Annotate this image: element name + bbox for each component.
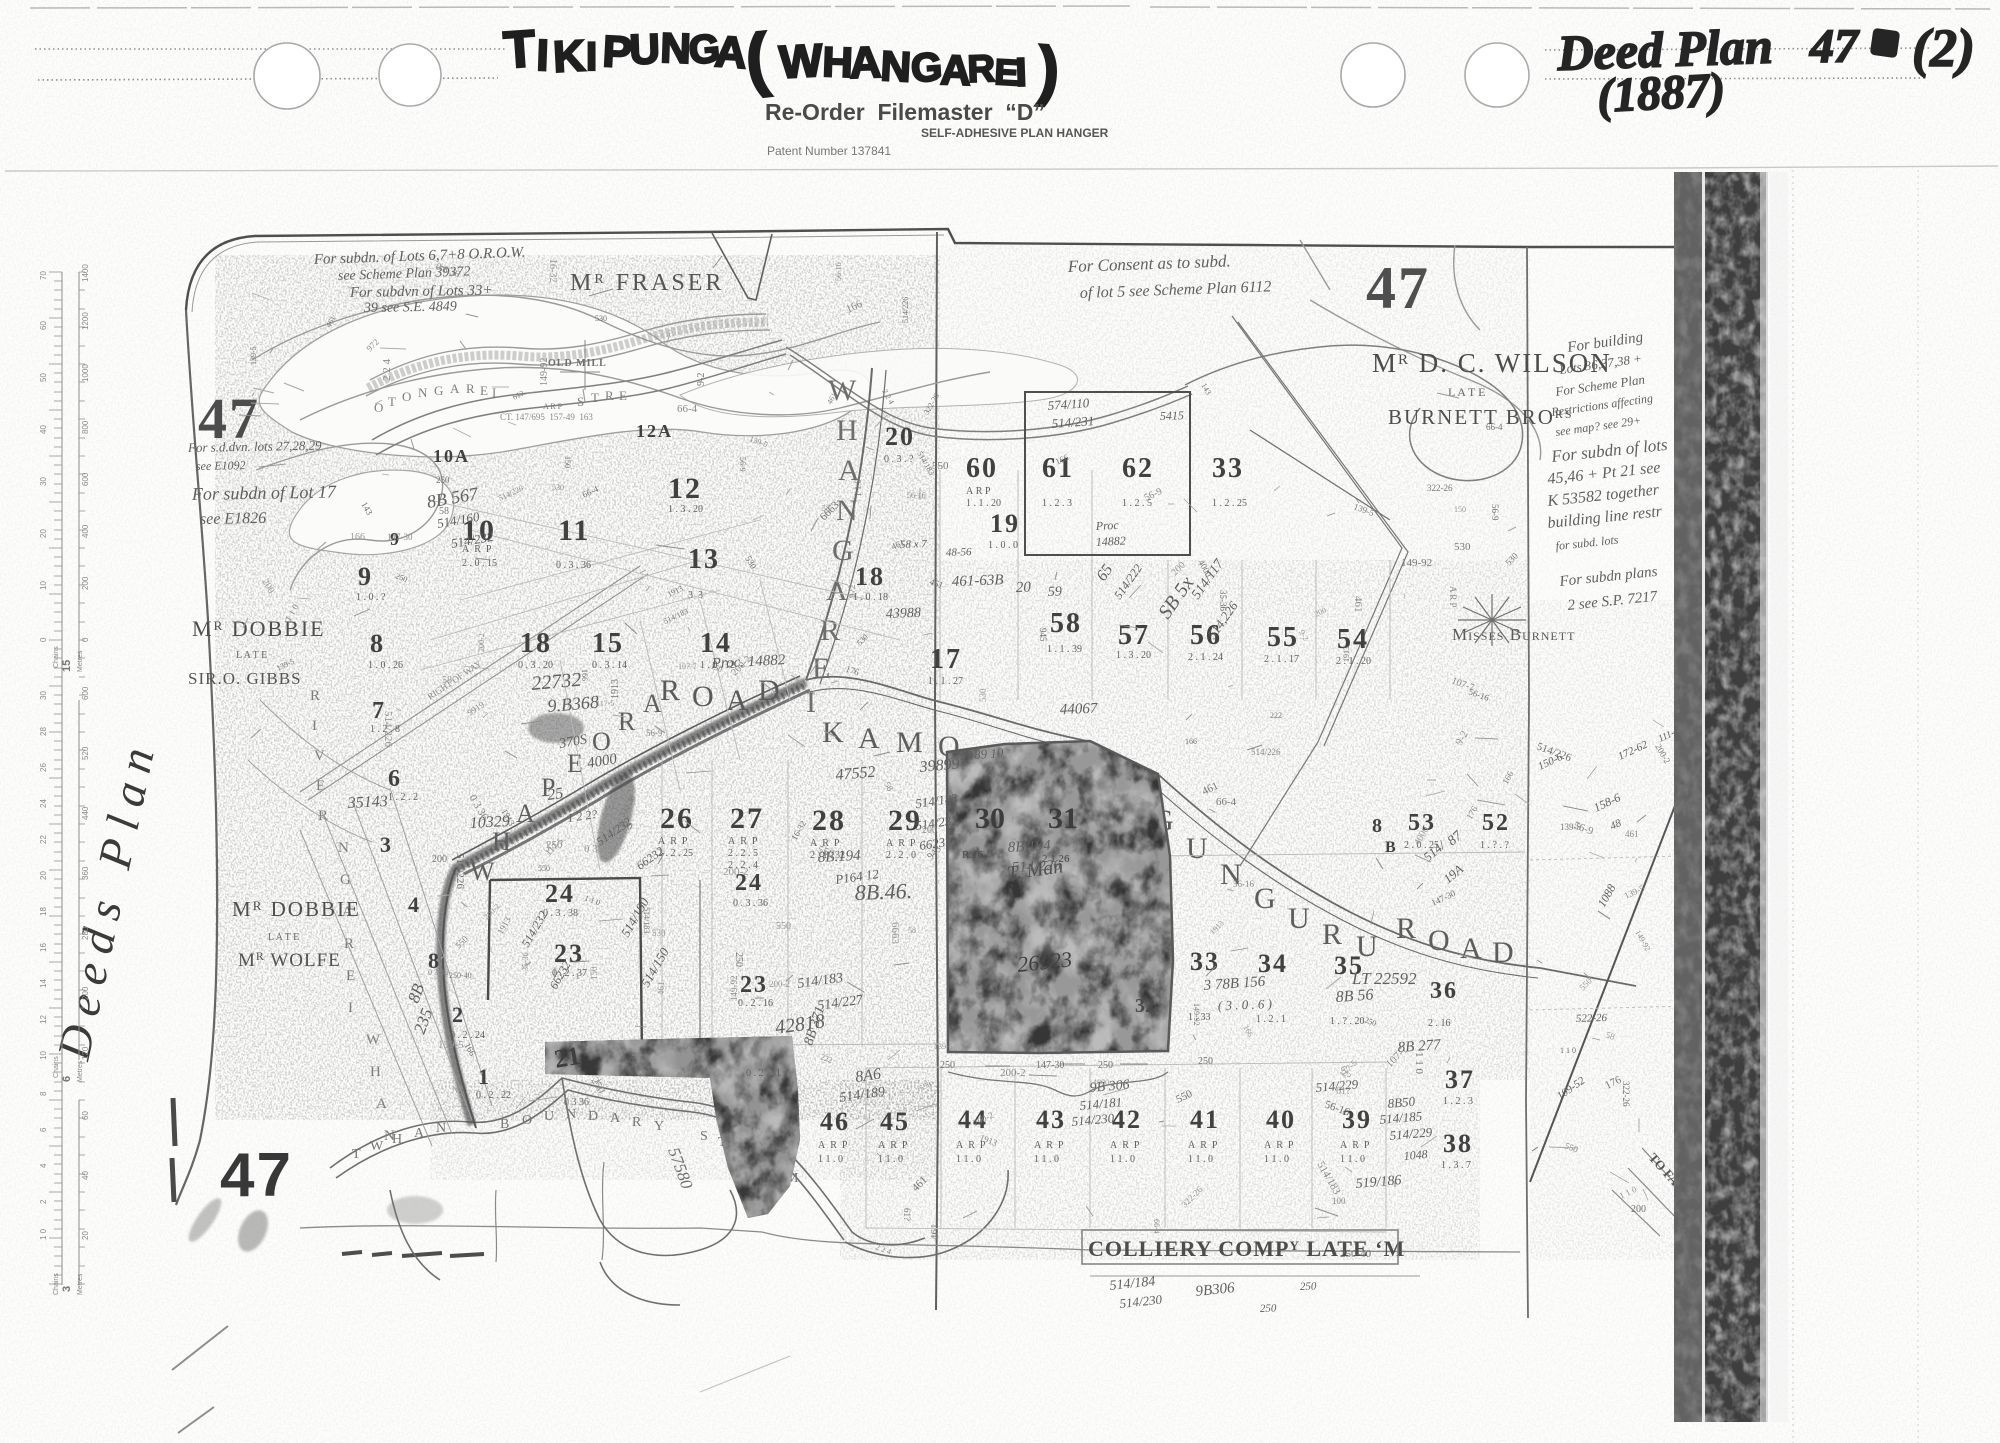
svg-text:50: 50 <box>39 373 48 382</box>
svg-text:A: A <box>610 1111 621 1126</box>
svg-text:E: E <box>346 968 355 984</box>
svg-text:461: 461 <box>656 982 666 996</box>
svg-text:200: 200 <box>432 854 447 865</box>
svg-text:2 . 16: 2 . 16 <box>1428 1018 1451 1029</box>
svg-text:1 . 1 . 39: 1 . 1 . 39 <box>1047 644 1082 655</box>
svg-text:16-32: 16-32 <box>547 259 558 282</box>
svg-text:Metres: Metres <box>77 1060 84 1082</box>
svg-text:250: 250 <box>1260 1302 1277 1315</box>
svg-text:200-2: 200-2 <box>1000 1067 1026 1079</box>
svg-text:600: 600 <box>81 472 90 486</box>
svg-text:66-4: 66-4 <box>1216 796 1237 808</box>
svg-text:Chains: Chains <box>53 646 60 668</box>
svg-text:E: E <box>480 383 488 398</box>
svg-text:1 . 2 . 2: 1 . 2 . 2 <box>388 792 418 803</box>
svg-text:1000: 1000 <box>81 364 90 382</box>
svg-text:0 . 2 . 16: 0 . 2 . 16 <box>738 998 773 1009</box>
svg-text:56-16: 56-16 <box>907 491 926 500</box>
svg-text:58: 58 <box>908 926 916 935</box>
svg-text:3 3: 3 3 <box>688 590 703 601</box>
svg-text:250: 250 <box>436 475 450 485</box>
svg-text:(2): (2) <box>1912 18 1975 78</box>
svg-text:S: S <box>577 394 584 409</box>
svg-text:24: 24 <box>545 879 575 908</box>
svg-text:15: 15 <box>61 660 73 672</box>
svg-text:18: 18 <box>39 907 48 916</box>
svg-text:W: W <box>470 857 495 886</box>
svg-text:514/226: 514/226 <box>1251 747 1281 757</box>
svg-text:58: 58 <box>822 504 830 513</box>
svg-text:400: 400 <box>81 524 90 538</box>
svg-text:1 . 0 . ?: 1 . 0 . ? <box>356 592 386 603</box>
svg-text:I: I <box>348 1000 353 1016</box>
svg-text:150: 150 <box>589 966 599 980</box>
svg-text:16: 16 <box>39 943 48 952</box>
svg-text:D: D <box>1492 936 1514 969</box>
svg-text:Chains: Chains <box>53 1273 60 1295</box>
svg-text:R: R <box>466 381 475 396</box>
svg-text:139-5: 139-5 <box>1560 822 1581 832</box>
svg-text:66-4: 66-4 <box>1486 422 1503 432</box>
svg-text:1 . 3 . 7: 1 . 3 . 7 <box>1441 1160 1471 1171</box>
svg-text:107-7: 107-7 <box>678 662 697 671</box>
svg-text:1 . ? . 20: 1 . ? . 20 <box>1330 1016 1364 1027</box>
svg-text:100: 100 <box>1332 1196 1346 1206</box>
svg-text:A: A <box>858 722 880 755</box>
svg-text:514/226: 514/226 <box>454 853 466 890</box>
svg-text:A R P: A R P <box>1034 1140 1064 1151</box>
svg-text:I: I <box>312 718 317 734</box>
svg-text:B: B <box>500 1117 509 1132</box>
svg-text:33: 33 <box>1212 453 1244 484</box>
svg-text:T: T <box>388 394 396 409</box>
svg-text:OLD MILL: OLD MILL <box>548 358 607 369</box>
svg-text:1 1 . 0: 1 1 . 0 <box>878 1154 903 1165</box>
svg-text:56-9: 56-9 <box>738 457 747 472</box>
svg-text:N: N <box>418 385 428 400</box>
svg-text:( 3 . 0 . 6 ): ( 3 . 0 . 6 ) <box>1218 996 1273 1013</box>
svg-text:47: 47 <box>1366 255 1430 321</box>
svg-text:20: 20 <box>39 529 48 538</box>
svg-text:9-2: 9-2 <box>696 373 707 386</box>
svg-text:0 3 36: 0 3 36 <box>584 843 612 855</box>
svg-text:MR DOBBIE: MR DOBBIE <box>232 897 361 921</box>
svg-text:A: A <box>414 1126 425 1141</box>
svg-text:O: O <box>522 1113 532 1128</box>
svg-text:0 . 3 . 36: 0 . 3 . 36 <box>556 560 591 571</box>
svg-text:200-2: 200-2 <box>723 866 749 878</box>
svg-text:200: 200 <box>922 825 937 836</box>
svg-text:Re-Order Filemaster “D”: Re-Order Filemaster “D” <box>765 99 1045 125</box>
svg-text:For s.d.dvn. lots 27,28,29: For s.d.dvn. lots 27,28,29 <box>187 438 322 455</box>
svg-text:Metres: Metres <box>77 1273 84 1295</box>
svg-text:58: 58 <box>442 675 452 686</box>
svg-text:3: 3 <box>380 832 393 857</box>
svg-text:G: G <box>434 383 443 398</box>
svg-text:O: O <box>402 389 411 404</box>
svg-text:G: G <box>1254 882 1276 915</box>
svg-text:R: R <box>310 688 320 704</box>
svg-text:520: 520 <box>81 746 90 760</box>
svg-text:200-2: 200-2 <box>769 979 790 989</box>
svg-text:T: T <box>591 390 599 405</box>
svg-text:30: 30 <box>975 802 1005 835</box>
svg-text:1 1 . 0: 1 1 . 0 <box>1340 1154 1365 1165</box>
svg-text:A: A <box>450 381 460 396</box>
svg-text:70: 70 <box>39 271 48 280</box>
svg-text:6: 6 <box>61 1076 73 1082</box>
svg-text:139-5: 139-5 <box>249 346 258 365</box>
svg-text:4000: 4000 <box>1093 1078 1109 1087</box>
svg-text:12A: 12A <box>636 421 673 441</box>
svg-text:139-5: 139-5 <box>438 1039 464 1051</box>
svg-text:1 1 . 0: 1 1 . 0 <box>1034 1154 1059 1165</box>
svg-text:A R P: A R P <box>966 486 991 497</box>
svg-text:N: N <box>384 1128 395 1144</box>
svg-text:W: W <box>778 34 825 88</box>
svg-text:0 . 3 . 14: 0 . 3 . 14 <box>592 660 627 671</box>
svg-text:0: 0 <box>81 637 90 642</box>
svg-text:1 . 1 . 27: 1 . 1 . 27 <box>928 676 963 687</box>
svg-text:149-92: 149-92 <box>539 358 550 386</box>
svg-text:322-26: 322-26 <box>1427 483 1453 493</box>
svg-text:514/226: 514/226 <box>1011 857 1061 876</box>
svg-text:28: 28 <box>39 727 48 736</box>
svg-text:4: 4 <box>408 892 421 917</box>
svg-text:1400: 1400 <box>81 264 90 282</box>
svg-text:26: 26 <box>660 802 694 835</box>
svg-text:P189 10: P189 10 <box>958 745 1004 763</box>
svg-text:9: 9 <box>358 562 373 591</box>
svg-text:31: 31 <box>1048 802 1078 835</box>
svg-text:1 . 1 . 20: 1 . 1 . 20 <box>966 498 1001 509</box>
svg-text:S: S <box>700 1129 708 1144</box>
svg-text:11: 11 <box>558 514 590 547</box>
svg-text:28: 28 <box>812 804 846 837</box>
svg-text:250-40: 250-40 <box>449 971 472 980</box>
svg-text:20: 20 <box>39 871 48 880</box>
svg-text:550: 550 <box>932 460 949 472</box>
svg-text:461: 461 <box>1352 596 1364 613</box>
svg-text:N: N <box>436 1121 446 1136</box>
svg-text:52: 52 <box>1482 810 1510 836</box>
svg-text:61?: 61? <box>902 1208 912 1221</box>
svg-text:56-16: 56-16 <box>1233 879 1254 889</box>
svg-text:4: 4 <box>39 1163 48 1168</box>
svg-text:55: 55 <box>1267 622 1299 653</box>
svg-text:6663: 6663 <box>889 922 901 945</box>
svg-text:20: 20 <box>1016 579 1032 596</box>
svg-text:972: 972 <box>847 585 857 599</box>
svg-text:SIR.O. GIBBS: SIR.O. GIBBS <box>188 669 302 688</box>
svg-text:O: O <box>692 680 714 713</box>
svg-text:2: 2 <box>452 1002 465 1027</box>
svg-text:R: R <box>632 1115 642 1130</box>
svg-text:14: 14 <box>39 979 48 988</box>
svg-text:B: B <box>1385 839 1398 856</box>
svg-text:1 1 . 0: 1 1 . 0 <box>1188 1154 1213 1165</box>
svg-text:12: 12 <box>39 1015 48 1024</box>
svg-text:2 . 2 . 0: 2 . 2 . 0 <box>886 850 916 861</box>
svg-text:200: 200 <box>1631 1204 1646 1215</box>
svg-text:22: 22 <box>39 835 48 844</box>
svg-text:250: 250 <box>1300 1280 1317 1293</box>
svg-text:17: 17 <box>930 644 962 675</box>
svg-text:W: W <box>370 1139 384 1154</box>
svg-text:25: 25 <box>546 785 564 804</box>
svg-text:48-56: 48-56 <box>946 546 973 559</box>
svg-text:1 . 3 . 20: 1 . 3 . 20 <box>668 504 703 515</box>
svg-text:18: 18 <box>520 628 552 659</box>
svg-text:A R P: A R P <box>1110 1140 1140 1151</box>
svg-text:0 . 2 . 22: 0 . 2 . 22 <box>476 1090 511 1101</box>
svg-text:461: 461 <box>929 1224 941 1241</box>
svg-text:200-2: 200-2 <box>477 633 486 652</box>
svg-text:R: R <box>1396 912 1416 945</box>
svg-text:1 1 . 0: 1 1 . 0 <box>1110 1154 1135 1165</box>
svg-text:see E1092: see E1092 <box>196 458 246 473</box>
svg-text:R: R <box>660 674 680 707</box>
svg-text:39 see S.E. 4849: 39 see S.E. 4849 <box>363 299 457 316</box>
svg-text:60: 60 <box>39 321 48 330</box>
svg-text:2 . 0 . 15: 2 . 0 . 15 <box>462 558 497 569</box>
svg-text:45: 45 <box>880 1107 910 1136</box>
svg-text:(1887): (1887) <box>1596 63 1727 123</box>
svg-text:574/110: 574/110 <box>1047 395 1090 413</box>
svg-text:I: I <box>1015 51 1028 95</box>
svg-text:59: 59 <box>1048 585 1063 600</box>
svg-text:35143: 35143 <box>346 793 388 812</box>
svg-text:40: 40 <box>39 425 48 434</box>
svg-text:K: K <box>552 31 587 82</box>
svg-text:1 1 . 0: 1 1 . 0 <box>1264 1154 1289 1165</box>
svg-text:D: D <box>758 674 780 707</box>
svg-text:56-9: 56-9 <box>1490 504 1500 521</box>
svg-text:Proc: Proc <box>1094 518 1119 533</box>
svg-text:1 . 2 . 25: 1 . 2 . 25 <box>1212 498 1247 509</box>
svg-text:Y: Y <box>654 1119 664 1134</box>
svg-text:E: E <box>619 388 627 403</box>
svg-text:530: 530 <box>652 928 666 938</box>
svg-text:A R P: A R P <box>1264 1140 1294 1151</box>
svg-text:8B 56: 8B 56 <box>1335 986 1374 1006</box>
svg-text:V: V <box>314 748 325 764</box>
svg-text:40: 40 <box>1266 1105 1296 1134</box>
svg-text:139-5: 139-5 <box>934 1042 953 1051</box>
svg-text:15: 15 <box>592 628 624 659</box>
svg-text:30: 30 <box>39 691 48 700</box>
svg-text:61?: 61? <box>1336 1086 1351 1097</box>
svg-text:R: R <box>618 707 636 736</box>
svg-text:58: 58 <box>439 506 449 517</box>
svg-text:32: 32 <box>1135 995 1155 1017</box>
svg-text:LT 22592: LT 22592 <box>1351 969 1417 988</box>
svg-text:250-40: 250-40 <box>1340 1248 1372 1260</box>
svg-text:A R P: A R P <box>1448 586 1458 608</box>
svg-text:1 . ? . ?: 1 . ? . ? <box>1480 840 1509 851</box>
svg-text:120: 120 <box>81 1046 90 1060</box>
svg-text:18: 18 <box>855 562 885 591</box>
svg-text:0 . 3 . 20: 0 . 3 . 20 <box>518 660 553 671</box>
svg-text:0 . 3 . ?: 0 . 3 . ? <box>884 454 914 465</box>
svg-text:1 1 . 0: 1 1 . 0 <box>956 1154 981 1165</box>
svg-text:1 1 0: 1 1 0 <box>853 479 863 498</box>
svg-text:117-5: 117-5 <box>596 699 614 708</box>
svg-text:27: 27 <box>730 802 764 835</box>
svg-text:56-16: 56-16 <box>834 262 843 281</box>
svg-text:K: K <box>822 716 844 749</box>
svg-text:46: 46 <box>820 1107 850 1136</box>
svg-text:250: 250 <box>1198 1056 1213 1067</box>
svg-text:A: A <box>376 1096 387 1112</box>
svg-text:60: 60 <box>966 453 998 484</box>
svg-text:N: N <box>338 840 349 856</box>
svg-text:8: 8 <box>39 1091 48 1096</box>
svg-text:514/183: 514/183 <box>642 907 651 933</box>
svg-text:20: 20 <box>885 422 915 451</box>
svg-text:41: 41 <box>1190 1105 1220 1134</box>
svg-text:A: A <box>726 684 748 717</box>
svg-text:24: 24 <box>39 799 48 808</box>
svg-text:149-92: 149-92 <box>729 976 739 1002</box>
svg-text:149-92: 149-92 <box>1192 1003 1201 1026</box>
svg-text:A R P: A R P <box>1188 1140 1218 1151</box>
svg-text:14882: 14882 <box>1095 533 1126 549</box>
svg-text:1 . 3 . 20: 1 . 3 . 20 <box>1116 650 1151 661</box>
svg-text:147-30: 147-30 <box>1036 1060 1064 1071</box>
svg-text:30: 30 <box>39 477 48 486</box>
svg-text:800: 800 <box>81 420 90 434</box>
svg-text:R: R <box>605 388 614 403</box>
svg-text:1 . 2 . 3: 1 . 2 . 3 <box>1042 498 1072 509</box>
svg-text:A R P: A R P <box>1340 1140 1370 1151</box>
svg-text:166: 166 <box>350 532 365 543</box>
svg-text:O: O <box>1428 924 1450 957</box>
svg-text:945: 945 <box>1038 628 1048 642</box>
svg-text:1 . 2 . 3: 1 . 2 . 3 <box>1443 1096 1473 1107</box>
svg-text:A R P: A R P <box>818 1140 848 1151</box>
svg-text:SELF-ADHESIVE PLAN HANGER: SELF-ADHESIVE PLAN HANGER <box>921 126 1109 140</box>
svg-text:6: 6 <box>388 766 402 792</box>
svg-text:Patent Number 137841: Patent Number 137841 <box>767 144 891 158</box>
svg-text:322-26: 322-26 <box>1621 1081 1631 1107</box>
svg-text:1 . 0 . 26: 1 . 0 . 26 <box>368 660 403 671</box>
svg-text:8: 8 <box>1372 815 1384 837</box>
svg-text:1: 1 <box>478 1064 491 1089</box>
svg-text:G: G <box>910 45 944 91</box>
svg-text:N: N <box>566 1107 576 1122</box>
svg-text:MR DOBBIE: MR DOBBIE <box>192 616 326 641</box>
svg-text:A: A <box>1460 932 1482 965</box>
svg-text:10: 10 <box>39 581 48 590</box>
svg-text:66-4: 66-4 <box>1152 1219 1161 1234</box>
svg-text:280: 280 <box>81 926 90 940</box>
svg-text:MR FRASER: MR FRASER <box>570 270 724 296</box>
svg-text:8: 8 <box>370 629 385 658</box>
svg-text:60: 60 <box>81 1111 90 1120</box>
svg-text:L A T E: L A T E <box>236 650 267 661</box>
svg-text:26: 26 <box>39 763 48 772</box>
svg-text:R: R <box>1322 918 1342 951</box>
svg-text:530: 530 <box>552 483 564 492</box>
svg-text:U: U <box>1288 902 1310 935</box>
svg-text:2 . 2 . 5: 2 . 2 . 5 <box>728 848 758 859</box>
svg-text:E: E <box>812 652 830 685</box>
svg-text:2: 2 <box>39 1199 48 1204</box>
svg-text:600: 600 <box>81 686 90 700</box>
svg-text:2 . 1 . 17: 2 . 1 . 17 <box>1264 654 1299 665</box>
svg-text:A R P: A R P <box>658 836 688 847</box>
svg-text:66-4: 66-4 <box>677 403 698 415</box>
svg-text:149-92: 149-92 <box>1401 557 1432 569</box>
svg-text:10: 10 <box>39 1051 48 1060</box>
svg-text:514/226: 514/226 <box>901 297 910 323</box>
svg-text:L A T E: L A T E <box>268 932 299 943</box>
svg-text:44067: 44067 <box>1060 701 1100 718</box>
svg-text:10A: 10A <box>433 446 470 466</box>
svg-text:22732: 22732 <box>531 669 583 695</box>
svg-text:43988: 43988 <box>886 606 922 622</box>
svg-text:250: 250 <box>1098 1060 1113 1071</box>
svg-text:250: 250 <box>733 952 744 967</box>
svg-text:19: 19 <box>990 509 1020 538</box>
svg-text:MR WOLFE: MR WOLFE <box>238 949 341 971</box>
svg-text:0 3 36: 0 3 36 <box>428 968 448 977</box>
svg-text:8A6: 8A6 <box>854 1066 882 1086</box>
svg-text:A R P: A R P <box>543 402 563 411</box>
svg-text:Chains: Chains <box>53 1056 60 1078</box>
svg-text:I: I <box>536 31 550 80</box>
svg-text:U: U <box>1186 832 1208 865</box>
svg-text:47: 47 <box>220 1141 293 1210</box>
svg-text:461-63B: 461-63B <box>952 572 1004 590</box>
svg-text:1 . 0 . 18: 1 . 0 . 18 <box>853 592 888 603</box>
svg-text:440: 440 <box>81 806 90 820</box>
svg-text:514/226: 514/226 <box>382 711 394 748</box>
svg-text:1 0: 1 0 <box>39 1228 48 1240</box>
svg-text:550: 550 <box>776 921 791 932</box>
svg-text:35-36: 35-36 <box>1218 590 1228 611</box>
svg-text:47: 47 <box>1809 20 1860 73</box>
svg-text:530: 530 <box>1454 541 1471 553</box>
svg-text:1 . 2 . 1: 1 . 2 . 1 <box>1256 1014 1286 1025</box>
svg-text:Metres: Metres <box>77 650 84 672</box>
svg-text:200: 200 <box>81 986 90 1000</box>
svg-text:2 . 1 . 24: 2 . 1 . 24 <box>1188 652 1223 663</box>
svg-text:1200: 1200 <box>81 312 90 330</box>
svg-text:522-26: 522-26 <box>1576 1012 1608 1025</box>
svg-text:200: 200 <box>81 576 90 590</box>
svg-text:For subdn of Lot 17: For subdn of Lot 17 <box>191 481 337 504</box>
svg-text:CT. 147/695 157-49 163: CT. 147/695 157-49 163 <box>500 412 593 422</box>
svg-text:23: 23 <box>740 972 768 998</box>
svg-text:T: T <box>352 1147 361 1162</box>
svg-text:R: R <box>967 48 996 91</box>
svg-text:E: E <box>567 749 583 778</box>
svg-text:H: H <box>370 1064 381 1080</box>
svg-text:20: 20 <box>81 1231 90 1240</box>
svg-text:37: 37 <box>1445 1065 1475 1094</box>
svg-text:5415: 5415 <box>1160 408 1184 423</box>
svg-text:R: R <box>820 614 840 647</box>
svg-text:H: H <box>492 827 511 856</box>
svg-text:N: N <box>836 494 858 527</box>
svg-text:A R P: A R P <box>886 838 916 849</box>
svg-text:47552: 47552 <box>835 764 876 784</box>
svg-text:0 . 3 . 36: 0 . 3 . 36 <box>733 898 768 909</box>
svg-text:62: 62 <box>1122 453 1154 484</box>
svg-text:35-36: 35-36 <box>521 952 530 971</box>
